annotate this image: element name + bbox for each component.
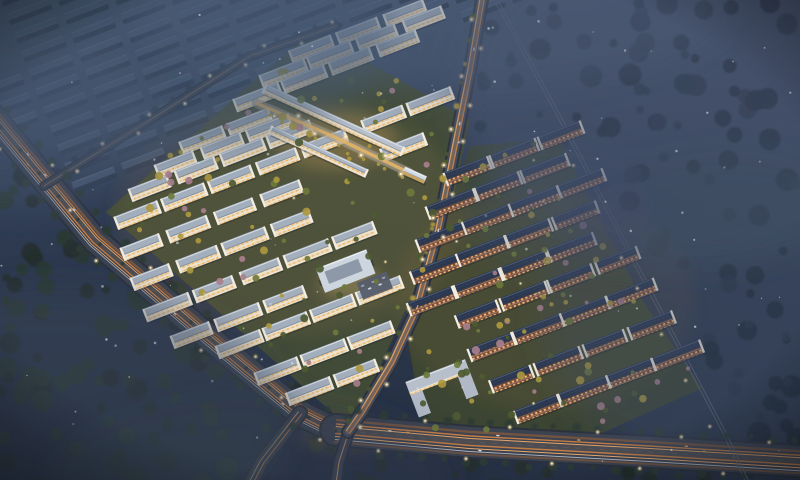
aerial-night-render (0, 0, 800, 480)
vignette (0, 0, 800, 480)
screenshot-root (0, 0, 800, 480)
